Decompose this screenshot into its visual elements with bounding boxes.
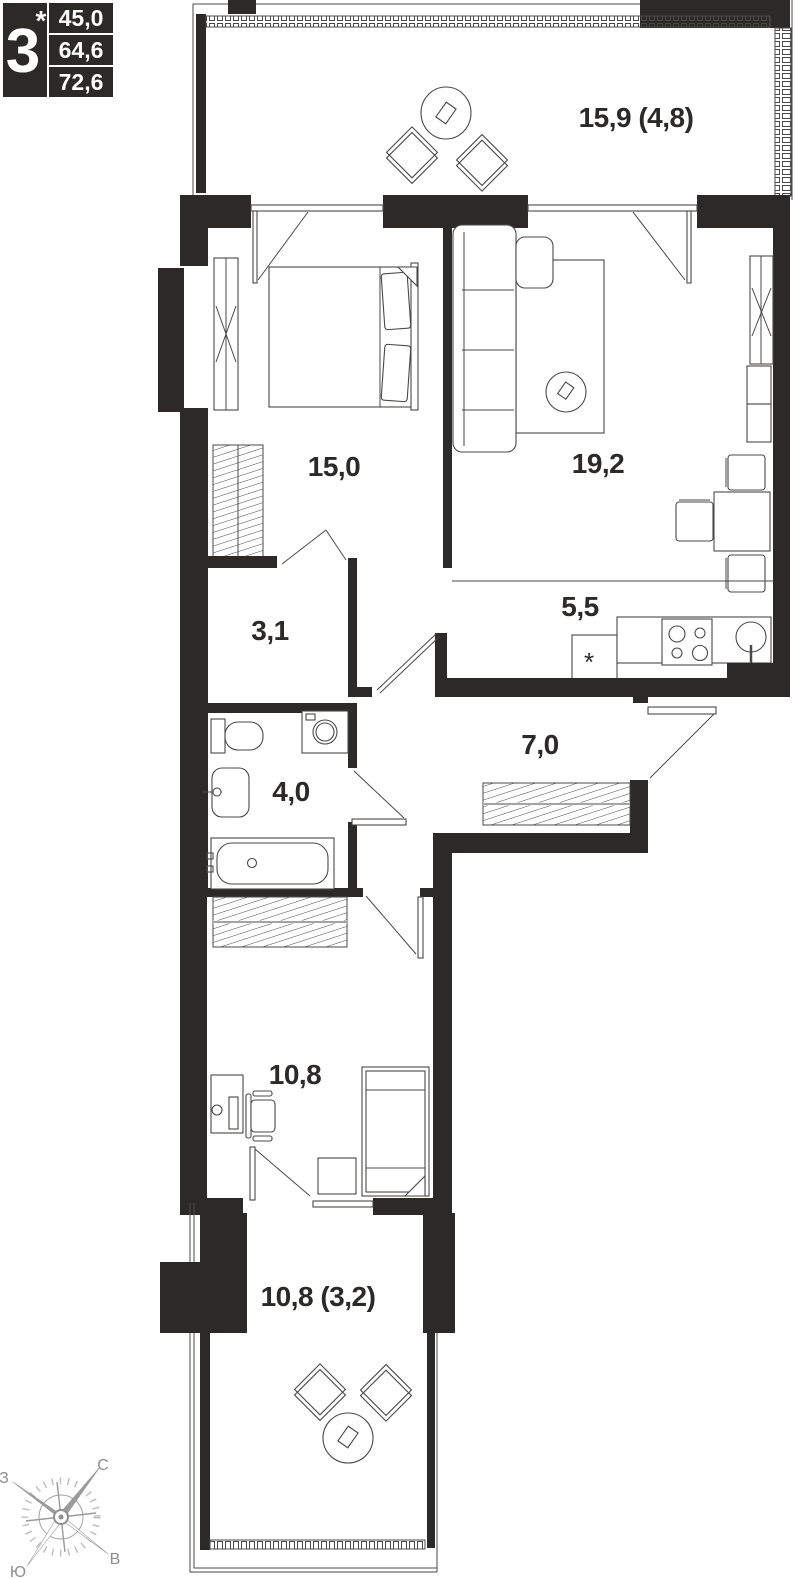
chair (676, 502, 713, 541)
room-label-hallway: 7,0 (521, 729, 558, 760)
window-icon (750, 256, 773, 364)
wall (196, 14, 206, 193)
balcony-top-outer-frame (193, 4, 643, 215)
badge-total-area: 64,6 (59, 37, 104, 63)
bathroom-sink-icon (203, 768, 249, 817)
glazed-railing-top (206, 16, 770, 27)
room-label-balcony-bottom: 10,8 (3,2) (261, 1281, 376, 1312)
corner-sofa (453, 225, 604, 452)
desk (211, 1075, 243, 1133)
room-label-balcony-top: 15,9 (4,8) (579, 102, 694, 133)
dining-table (714, 492, 770, 551)
wall (228, 0, 256, 14)
room-label-living: 19,2 (572, 448, 625, 479)
balcony-door-bedroom-2 (250, 1147, 310, 1200)
office-chair (246, 1091, 275, 1141)
room-label-bedroom-2: 10,8 (269, 1059, 322, 1090)
balcony-door-living (633, 211, 691, 283)
window-icon (214, 258, 238, 410)
hallway-wardrobe (483, 783, 630, 825)
room-bedroom: 15,0 (158, 195, 418, 568)
chair (728, 555, 765, 592)
window-sill (528, 205, 697, 211)
glazed-railing-bottom (210, 1540, 425, 1549)
fridge-mark: * (584, 647, 594, 677)
compass-west: З (0, 1470, 9, 1487)
round-table (323, 1413, 373, 1463)
room-kitchen: * 5,5 (452, 581, 773, 681)
door-bedroom-2 (366, 896, 423, 958)
room-balcony-bottom: 10,8 (3,2) (160, 1203, 455, 1572)
fridge: * (572, 635, 617, 681)
room-label-bedroom: 15,0 (308, 451, 361, 482)
glazed-railing-right (775, 28, 791, 196)
room-label-kitchen: 5,5 (561, 591, 598, 622)
door-bathroom (352, 771, 406, 825)
chair (384, 127, 441, 184)
door-kitchen-corridor (377, 633, 440, 693)
floor-plan-page: 3 * 45,0 64,6 72,6 15,9 (4,8) (0, 0, 800, 1578)
nightstand (318, 1158, 356, 1194)
room-hallway: 7,0 (433, 663, 790, 853)
single-bed (362, 1067, 429, 1196)
apartment-badge: 3 * 45,0 64,6 72,6 (3, 3, 113, 97)
room-bathroom: 4,0 (203, 703, 452, 897)
window-sill (251, 205, 383, 211)
badge-living-area: 45,0 (59, 5, 104, 31)
door-storage (282, 530, 346, 564)
cabinet (747, 404, 771, 442)
bathtub-icon (207, 838, 334, 889)
coffee-table (546, 372, 586, 412)
room-label-storage: 3,1 (251, 615, 288, 646)
toilet-icon (211, 719, 263, 753)
window-sill (313, 1201, 373, 1207)
compass-east: В (110, 1551, 121, 1568)
room-label-bathroom: 4,0 (272, 776, 309, 807)
badge-total-summer-area: 72,6 (59, 69, 104, 95)
chair (454, 135, 511, 192)
room-bedroom-2: 10,8 (180, 853, 452, 1215)
entrance-door (648, 707, 716, 778)
room-balcony-top: 15,9 (4,8) (193, 0, 792, 215)
wardrobe (213, 897, 347, 947)
chair (358, 1365, 415, 1422)
washing-machine-icon (302, 711, 348, 753)
compass-rose-icon: С Ю З В (0, 1457, 120, 1578)
dining-set (676, 455, 770, 592)
chair (292, 1364, 349, 1421)
chair (728, 455, 765, 490)
wardrobe (213, 445, 263, 560)
badge-star: * (36, 5, 47, 36)
compass-south: Ю (10, 1564, 26, 1578)
cabinet (747, 366, 771, 404)
double-bed (269, 263, 418, 410)
compass-north: С (97, 1457, 109, 1474)
stove-icon (662, 619, 712, 665)
